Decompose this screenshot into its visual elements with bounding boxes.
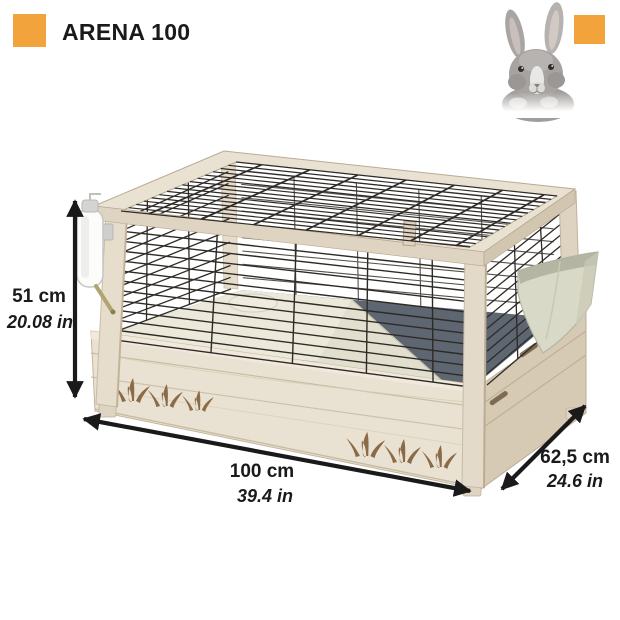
depth-cm-label: 62,5 cm	[540, 447, 610, 468]
width-in-label: 39.4 in	[237, 486, 293, 506]
front-right-post	[462, 250, 486, 488]
bottle-body	[77, 209, 103, 287]
corner-accent-square-icon	[574, 15, 605, 44]
brand-square-icon	[13, 14, 46, 47]
width-cm-label: 100 cm	[230, 461, 294, 482]
header: ARENA 100	[13, 14, 190, 47]
height-cm-label: 51 cm	[12, 286, 66, 307]
depth-in-label: 24.6 in	[546, 471, 603, 491]
arena-100-size-diagram: ARENA 100	[0, 0, 620, 620]
cage-illustration	[77, 151, 598, 496]
dimension-height: 51 cm 20.08 in	[6, 201, 75, 397]
height-in-label: 20.08 in	[6, 312, 73, 332]
bottle-cap	[82, 200, 98, 212]
product-title: ARENA 100	[62, 19, 190, 45]
